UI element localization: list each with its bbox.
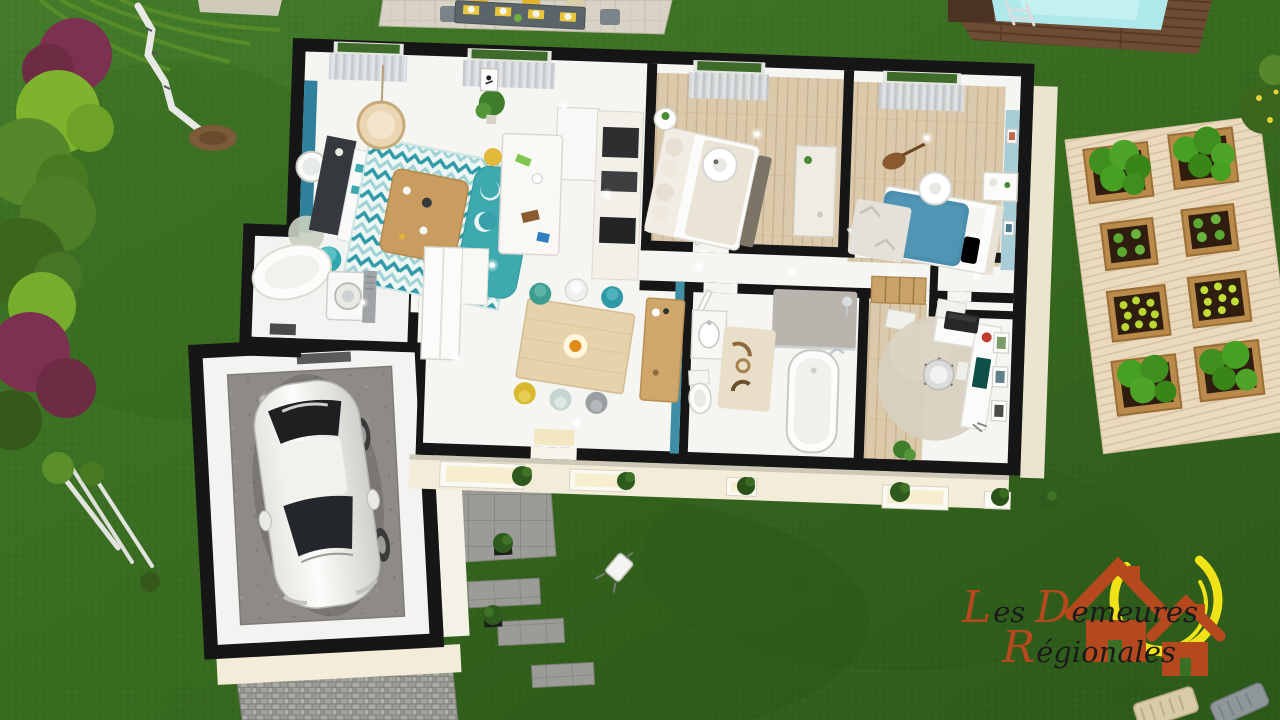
floorplan-rendering: LesDemeures Régionales (0, 0, 1280, 720)
vegetable-garden-deck (1065, 116, 1280, 454)
bath-rug (717, 326, 776, 412)
monitor (971, 356, 993, 390)
nightstand (983, 172, 1018, 201)
dining-table (516, 298, 635, 394)
office-wardrobe (871, 276, 926, 304)
master-bed (644, 127, 774, 254)
patio-chair-gray-right (600, 9, 620, 25)
cooktop (602, 127, 639, 158)
toilet (688, 370, 712, 414)
oven (599, 217, 636, 244)
laundry-window-slit (270, 323, 296, 335)
dresser (793, 146, 836, 237)
bedroom2-rug (847, 198, 912, 263)
bathtub (786, 348, 844, 453)
sideboard (640, 298, 685, 402)
vanity (691, 310, 727, 359)
washing-machine (326, 269, 377, 323)
wall-art-frame (480, 69, 498, 92)
scene: LesDemeures Régionales (0, 0, 1280, 720)
front-door (530, 429, 577, 461)
